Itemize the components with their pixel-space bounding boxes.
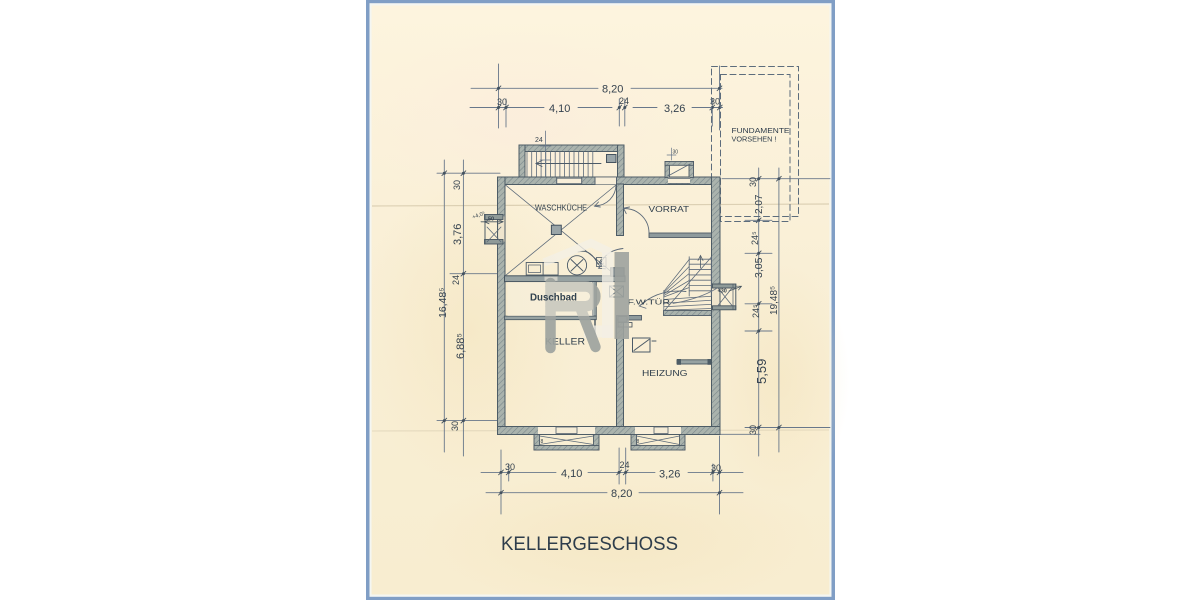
svg-text:WASCHKÜCHE: WASCHKÜCHE xyxy=(535,204,587,213)
svg-text:HEIZUNG: HEIZUNG xyxy=(642,368,688,378)
svg-text:30: 30 xyxy=(450,421,460,431)
svg-text:VORSEHEN !: VORSEHEN ! xyxy=(732,137,777,144)
svg-text:3,76: 3,76 xyxy=(452,224,464,245)
svg-text:+30: +30 xyxy=(718,289,727,295)
svg-text:KELLERGESCHOSS: KELLERGESCHOSS xyxy=(501,534,678,555)
svg-text:19,48⁵: 19,48⁵ xyxy=(769,286,780,315)
svg-text:30: 30 xyxy=(497,97,507,107)
svg-text:8,20: 8,20 xyxy=(611,488,632,500)
svg-text:F.W.TÜR: F.W.TÜR xyxy=(628,298,671,307)
svg-text:3,26: 3,26 xyxy=(659,469,680,481)
svg-text:5,59: 5,59 xyxy=(754,359,769,384)
svg-text:8: 8 xyxy=(637,439,640,445)
svg-text:24: 24 xyxy=(620,460,630,470)
svg-text:2,07: 2,07 xyxy=(754,194,765,214)
svg-text:4,10: 4,10 xyxy=(549,103,570,115)
svg-text:24⁵: 24⁵ xyxy=(750,231,760,245)
svg-text:24: 24 xyxy=(535,137,543,144)
svg-text:30: 30 xyxy=(452,180,462,190)
svg-text:VORRAT: VORRAT xyxy=(649,204,690,214)
svg-text:8: 8 xyxy=(541,439,544,445)
svg-text:30: 30 xyxy=(673,150,679,156)
svg-text:FUNDAMENTE: FUNDAMENTE xyxy=(732,128,790,135)
svg-text:50: 50 xyxy=(488,217,494,223)
svg-text:3,26: 3,26 xyxy=(664,103,685,115)
svg-text:4,10: 4,10 xyxy=(561,468,582,480)
svg-text:8,20: 8,20 xyxy=(602,84,623,96)
svg-text:24: 24 xyxy=(451,275,461,285)
svg-text:16,48⁵: 16,48⁵ xyxy=(437,287,449,318)
svg-text:3,05: 3,05 xyxy=(753,257,765,278)
svg-text:24: 24 xyxy=(619,96,629,106)
svg-text:6,88⁵: 6,88⁵ xyxy=(455,333,467,359)
svg-text:30: 30 xyxy=(748,177,758,187)
svg-text:Duschbad: Duschbad xyxy=(530,292,577,304)
svg-text:30: 30 xyxy=(711,463,721,473)
